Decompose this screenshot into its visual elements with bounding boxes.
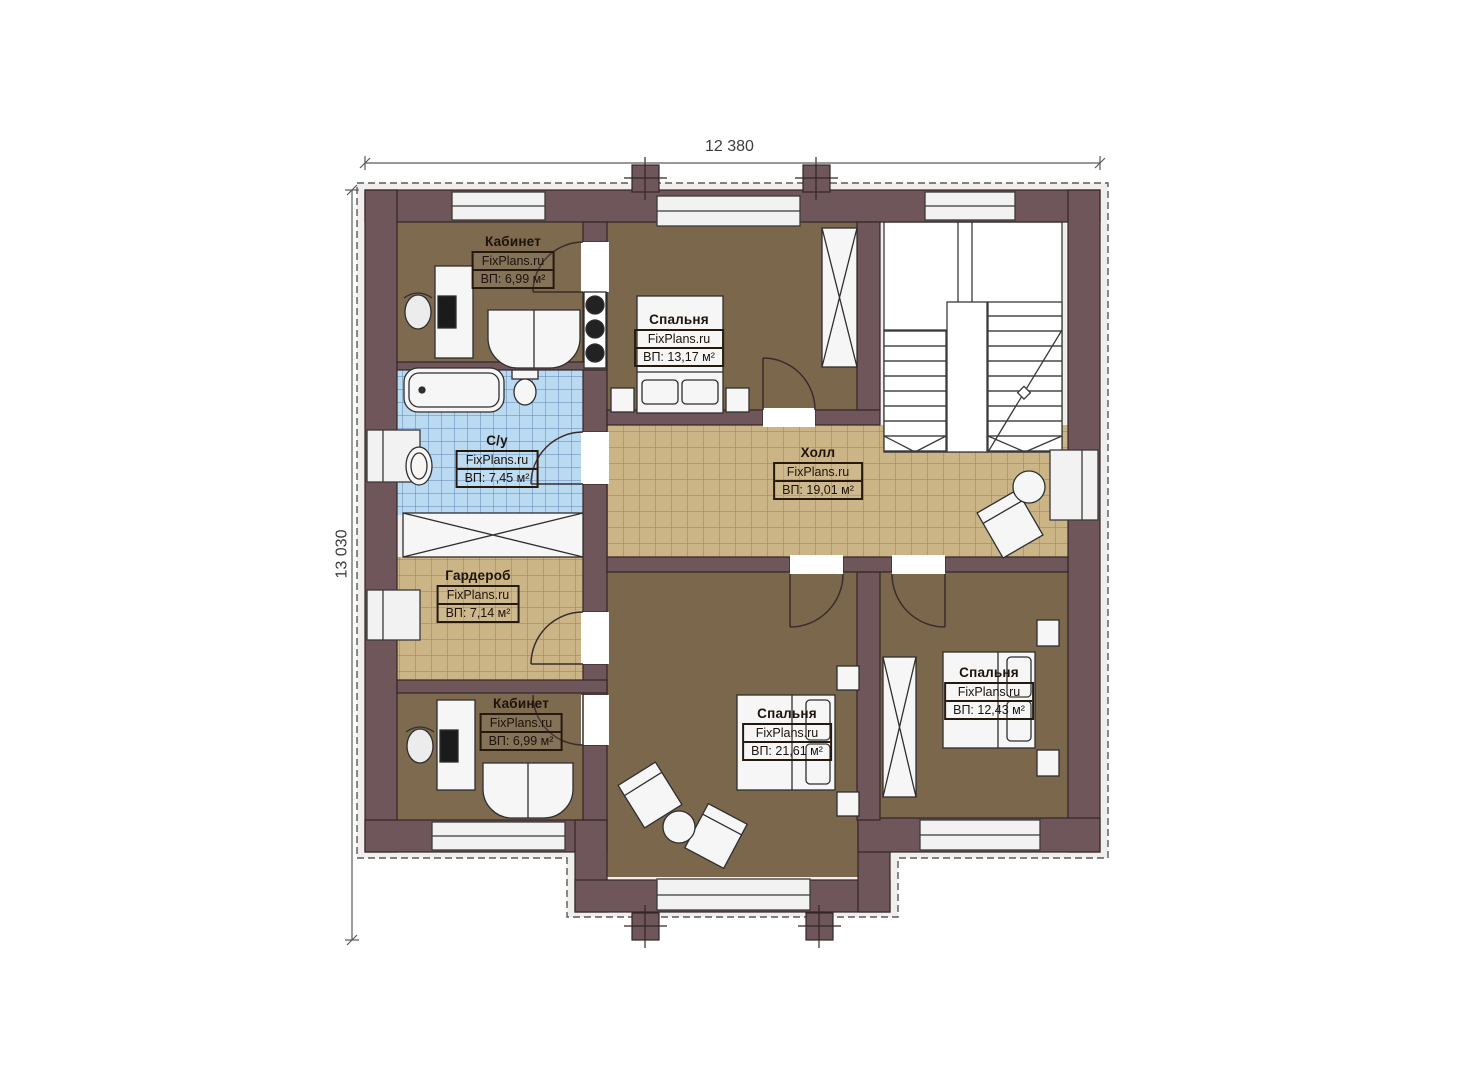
wall-divider-left xyxy=(583,484,607,612)
nightstand xyxy=(611,388,634,412)
wardrobe-unit xyxy=(822,228,857,367)
wall-hall-south xyxy=(607,557,790,572)
door-opening xyxy=(790,555,843,574)
wall-right xyxy=(1068,190,1100,852)
side-table xyxy=(663,811,695,843)
door-opening xyxy=(763,408,815,427)
wall-hall-south xyxy=(945,557,1068,572)
nightstand xyxy=(837,666,859,690)
door-opening xyxy=(581,432,609,484)
dimension-height-label: 13 030 xyxy=(333,530,351,579)
window xyxy=(1050,450,1098,520)
dimension-width-label: 12 380 xyxy=(705,138,754,156)
nightstand xyxy=(1037,620,1059,646)
window xyxy=(657,879,810,910)
toilet-tank xyxy=(512,370,538,379)
pillow xyxy=(1007,657,1031,697)
door-opening xyxy=(581,612,609,664)
wall-stair-divider xyxy=(857,222,880,410)
stair-flight-left xyxy=(884,330,946,452)
office-chair xyxy=(405,295,431,329)
toilet xyxy=(514,379,536,405)
window xyxy=(452,192,545,220)
pillow xyxy=(642,380,678,404)
pillow xyxy=(806,700,830,740)
door-opening xyxy=(581,242,609,292)
wall-bedroom-hall xyxy=(815,410,880,425)
door-opening xyxy=(892,555,945,574)
floor-plan: 12 380 13 030 Кабинет FixPlans.ru ВП: 6,… xyxy=(0,0,1473,1080)
wall-left xyxy=(365,190,397,852)
wall-bedroom-divider xyxy=(857,572,880,820)
nightstand xyxy=(726,388,749,412)
monitor xyxy=(438,296,456,328)
flue-duct xyxy=(586,344,604,362)
window xyxy=(925,192,1015,220)
flue-duct xyxy=(586,320,604,338)
bathtub-drain xyxy=(419,387,425,393)
floor-plan-drawing xyxy=(0,0,1473,1080)
wall-wardrobe-office xyxy=(397,680,607,693)
nightstand xyxy=(837,792,859,816)
pillow xyxy=(682,380,718,404)
stairs xyxy=(884,222,1062,452)
wall-hall-south xyxy=(843,557,892,572)
pillow xyxy=(806,744,830,784)
wall-divider-left xyxy=(583,745,607,820)
monitor xyxy=(440,730,458,762)
window xyxy=(432,822,565,850)
pillow xyxy=(1007,701,1031,741)
window xyxy=(367,590,420,640)
stair-railing xyxy=(947,302,987,452)
closet-unit xyxy=(403,513,583,557)
wardrobe-unit xyxy=(883,657,916,797)
wall-divider-left xyxy=(583,222,607,242)
stair-flight-right xyxy=(988,302,1062,452)
window xyxy=(920,820,1040,850)
window xyxy=(657,196,800,226)
office-chair xyxy=(407,729,433,763)
flue-duct xyxy=(586,296,604,314)
side-table xyxy=(1013,471,1045,503)
door-opening xyxy=(581,695,609,745)
nightstand xyxy=(1037,750,1059,776)
